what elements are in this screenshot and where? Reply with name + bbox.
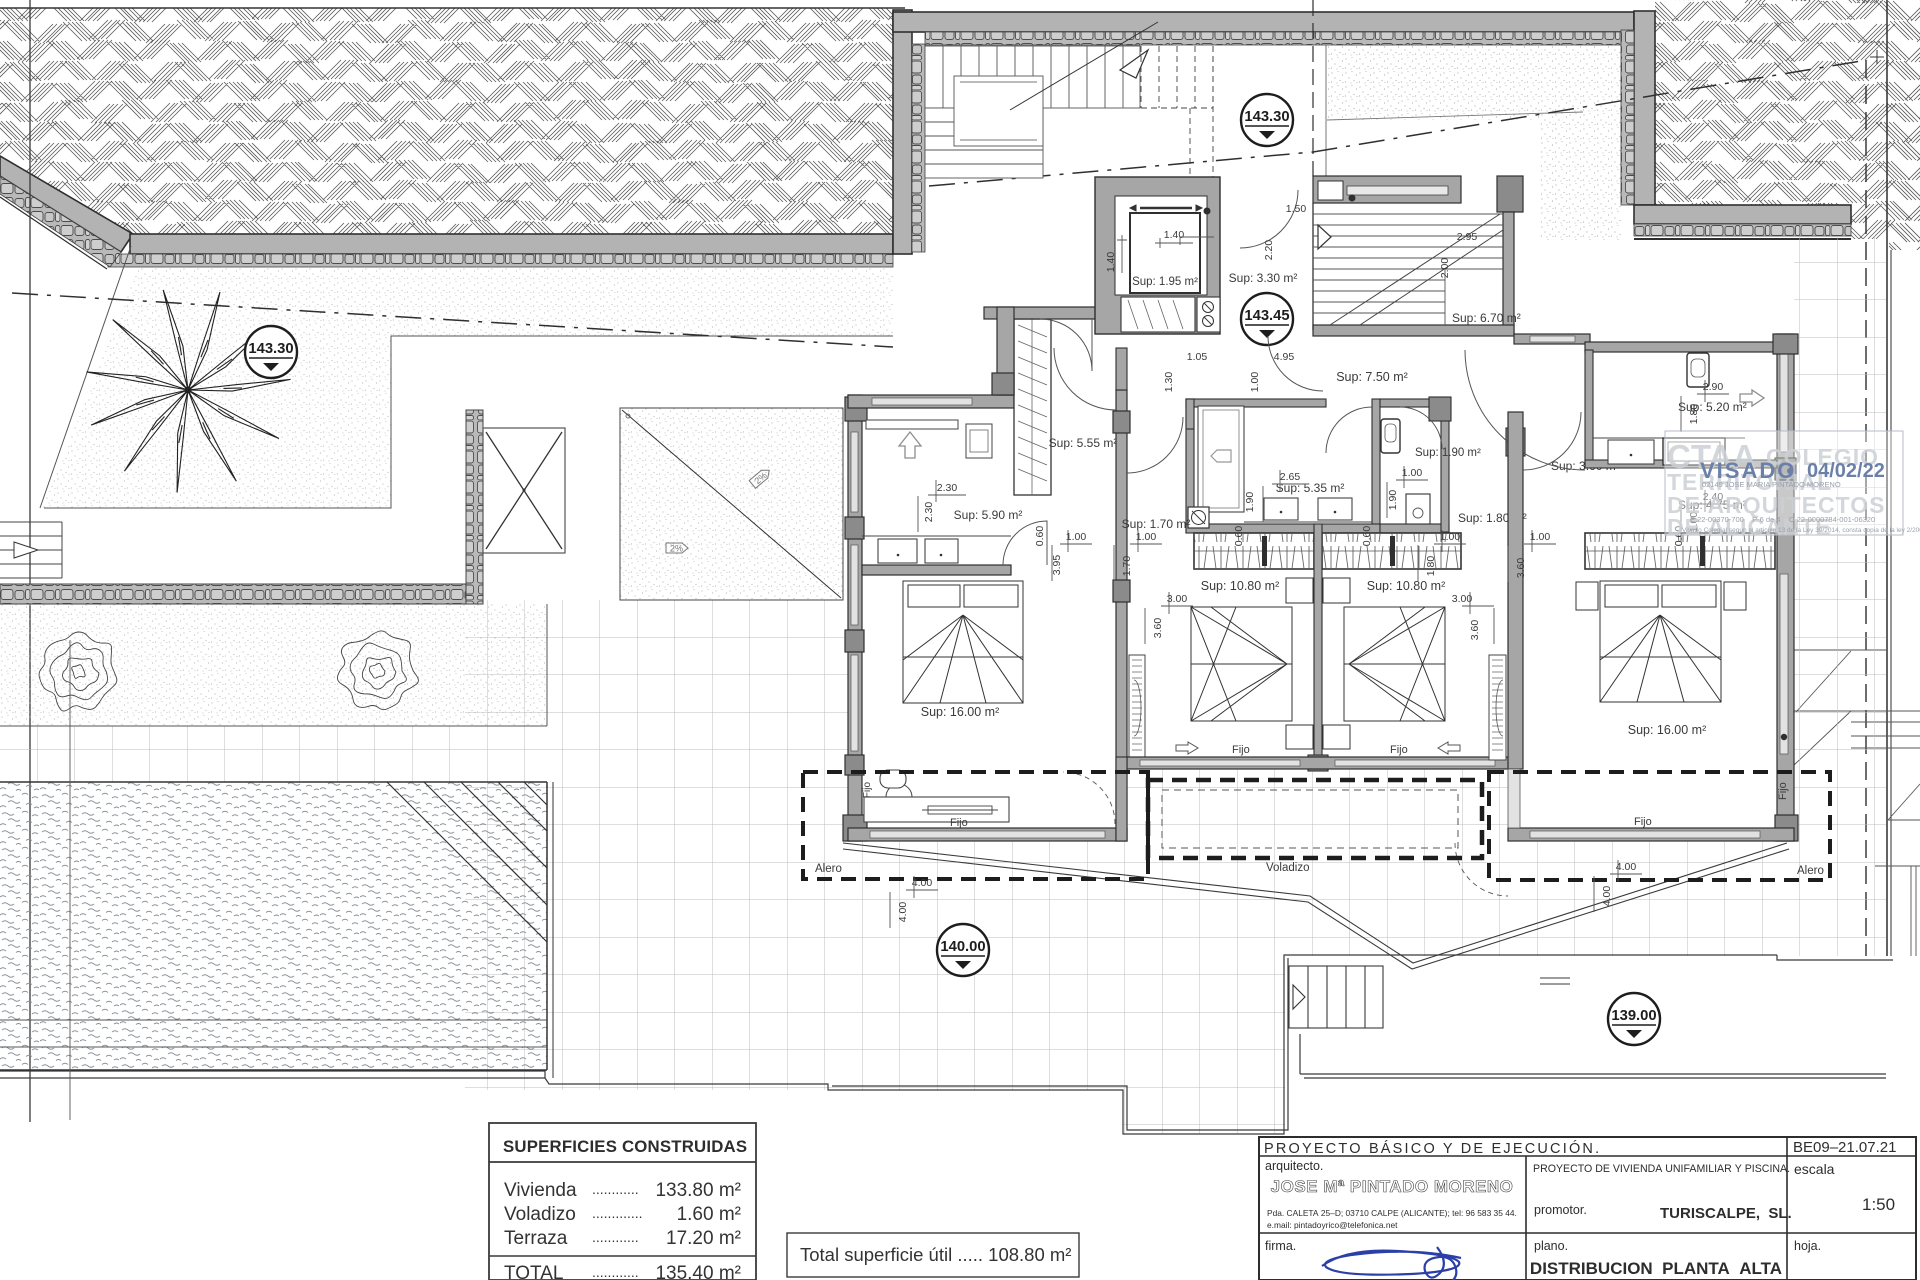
svg-text:1.80: 1.80 [1425,556,1437,577]
svg-text:3.00: 3.00 [1452,593,1473,605]
svg-text:143.45: 143.45 [1244,308,1289,324]
svg-text:4.00: 4.00 [912,877,933,889]
svg-text:2.30: 2.30 [923,502,935,523]
svg-text:17.20 m²: 17.20 m² [666,1228,741,1249]
svg-text:E:22-00370-700 P-6 de 4: E:22-00370-700 P-6 de 4 O 22-0000784-001… [1690,515,1875,524]
svg-text:Fijo: Fijo [862,782,873,799]
svg-text:140.00: 140.00 [940,939,985,955]
svg-text:Sup: 6.70 m²: Sup: 6.70 m² [1452,311,1521,325]
svg-text:plano.: plano. [1534,1239,1568,1253]
svg-text:1.00: 1.00 [1066,531,1087,543]
svg-text:.............: ............. [592,1205,643,1221]
svg-text:3.00: 3.00 [1167,593,1188,605]
svg-text:PROYECTO DE VIVIENDA UNIFAMILI: PROYECTO DE VIVIENDA UNIFAMILIAR Y PISCI… [1533,1163,1790,1175]
svg-text:2%: 2% [670,544,683,554]
svg-text:Vivienda: Vivienda [504,1180,577,1201]
svg-text:Pda. CALETA 25–D; 03710 CALPE: Pda. CALETA 25–D; 03710 CALPE (ALICANTE)… [1267,1208,1517,1218]
svg-text:arquitecto.: arquitecto. [1265,1159,1323,1173]
svg-text:4.00: 4.00 [1601,886,1613,907]
svg-text:Total superficie útil ..... 10: Total superficie útil ..... 108.80 m² [800,1244,1071,1265]
svg-text:e.mail: pintadoyrico@telefonic: e.mail: pintadoyrico@telefonica.net [1267,1220,1398,1230]
svg-text:0.60: 0.60 [1233,526,1245,547]
svg-text:Sup: 5.55 m²: Sup: 5.55 m² [1049,436,1118,450]
svg-text:3.60: 3.60 [1469,620,1481,641]
svg-text:Terraza: Terraza [504,1228,568,1249]
svg-text:Visado Colegial segun el artic: Visado Colegial segun el articulo 13 de … [1682,527,1920,534]
svg-text:1.90: 1.90 [1244,492,1256,513]
svg-text:Sup: 7.50 m²: Sup: 7.50 m² [1336,370,1408,384]
svg-text:1.40: 1.40 [1164,229,1185,241]
svg-text:4.00: 4.00 [1616,861,1637,873]
svg-text:TOTAL: TOTAL [504,1263,563,1280]
svg-text:JOSE Mª PINTADO MORENO: JOSE Mª PINTADO MORENO [1271,1177,1514,1196]
svg-text:143.30: 143.30 [1244,109,1289,125]
svg-text:Sup: 1.70 m²: Sup: 1.70 m² [1122,517,1191,531]
svg-text:0.60: 0.60 [1361,526,1373,547]
svg-text:Sup: 5.90 m²: Sup: 5.90 m² [954,508,1023,522]
svg-text:Sup: 10.80 m²: Sup: 10.80 m² [1367,579,1446,593]
svg-text:Sup: 3.30 m²: Sup: 3.30 m² [1229,271,1298,285]
svg-text:Fijo: Fijo [1777,782,1789,800]
svg-text:Sup: 1.95 m²: Sup: 1.95 m² [1132,276,1198,288]
svg-text:1.00: 1.00 [1136,531,1157,543]
svg-text:Sup: 16.00 m²: Sup: 16.00 m² [921,705,1000,719]
svg-text:Voladizo: Voladizo [1266,862,1309,874]
svg-text:Fijo: Fijo [950,817,968,829]
svg-text:Alero: Alero [815,863,842,875]
svg-text:promotor.: promotor. [1534,1203,1587,1217]
svg-text:2.20: 2.20 [1263,240,1275,261]
svg-text:2.00: 2.00 [1439,258,1451,279]
svg-text:SUPERFICIES CONSTRUIDAS: SUPERFICIES CONSTRUIDAS [503,1137,747,1156]
svg-text:1.70: 1.70 [1121,556,1133,577]
svg-text:135.40 m²: 135.40 m² [655,1263,741,1280]
svg-text:BE09–21.07.21: BE09–21.07.21 [1793,1139,1896,1156]
svg-text:escala: escala [1794,1161,1835,1177]
svg-text:Fijo: Fijo [1390,744,1408,756]
svg-text:0.60: 0.60 [1034,526,1046,547]
svg-text:hoja.: hoja. [1794,1239,1821,1253]
svg-text:Sup: 16.00 m²: Sup: 16.00 m² [1628,723,1707,737]
svg-text:1.30: 1.30 [1163,372,1175,393]
svg-text:............: ............ [592,1181,639,1197]
svg-text:DISTRIBUCION PLANTA ALTA: DISTRIBUCION PLANTA ALTA [1530,1259,1782,1278]
svg-text:4.00: 4.00 [897,902,909,923]
svg-text:3.60: 3.60 [1515,558,1527,579]
svg-text:1.00: 1.00 [1402,467,1423,479]
svg-text:1.00: 1.00 [1530,531,1551,543]
svg-text:2.95: 2.95 [1457,231,1478,243]
svg-text:Alero: Alero [1797,865,1824,877]
svg-text:1.90: 1.90 [1387,490,1399,511]
svg-text:1.60 m²: 1.60 m² [677,1204,741,1225]
svg-text:Sup: 1.90 m²: Sup: 1.90 m² [1415,447,1481,459]
svg-text:2.65: 2.65 [1280,471,1301,483]
svg-text:04/02/22: 04/02/22 [1807,460,1885,482]
svg-text:4.95: 4.95 [1274,351,1295,363]
svg-text:02149 JOSE MARIA PINTADO MOREN: 02149 JOSE MARIA PINTADO MORENO [1702,480,1841,489]
svg-text:1:50: 1:50 [1862,1195,1895,1214]
svg-text:Voladizo: Voladizo [504,1204,576,1225]
svg-text:1.50: 1.50 [1286,203,1307,215]
svg-text:143.30: 143.30 [248,341,293,357]
svg-text:Fijo: Fijo [1232,744,1250,756]
svg-text:PROYECTO BÁSICO Y DE EJECUCIÓN: PROYECTO BÁSICO Y DE EJECUCIÓN. [1264,1140,1601,1157]
svg-text:133.80 m²: 133.80 m² [655,1180,741,1201]
svg-text:............: ............ [592,1229,639,1245]
svg-text:1.40: 1.40 [1105,252,1117,273]
svg-text:1.80: 1.80 [1688,404,1700,425]
svg-text:Fijo: Fijo [1634,816,1652,828]
svg-text:1.05: 1.05 [1187,351,1208,363]
svg-text:3.60: 3.60 [1152,618,1164,639]
svg-text:Sup: 10.80 m²: Sup: 10.80 m² [1201,579,1280,593]
svg-text:............: ............ [592,1264,639,1280]
svg-text:139.00: 139.00 [1611,1008,1656,1024]
svg-text:Sup: 5.35 m²: Sup: 5.35 m² [1276,481,1345,495]
svg-text:3.95: 3.95 [1051,555,1063,576]
svg-text:2.30: 2.30 [937,482,958,494]
svg-text:2.90: 2.90 [1703,381,1724,393]
svg-text:1.00: 1.00 [1249,372,1261,393]
svg-text:TURISCALPE, SL.: TURISCALPE, SL. [1660,1205,1792,1222]
svg-text:1.00: 1.00 [1440,531,1461,543]
svg-text:firma.: firma. [1265,1239,1296,1253]
